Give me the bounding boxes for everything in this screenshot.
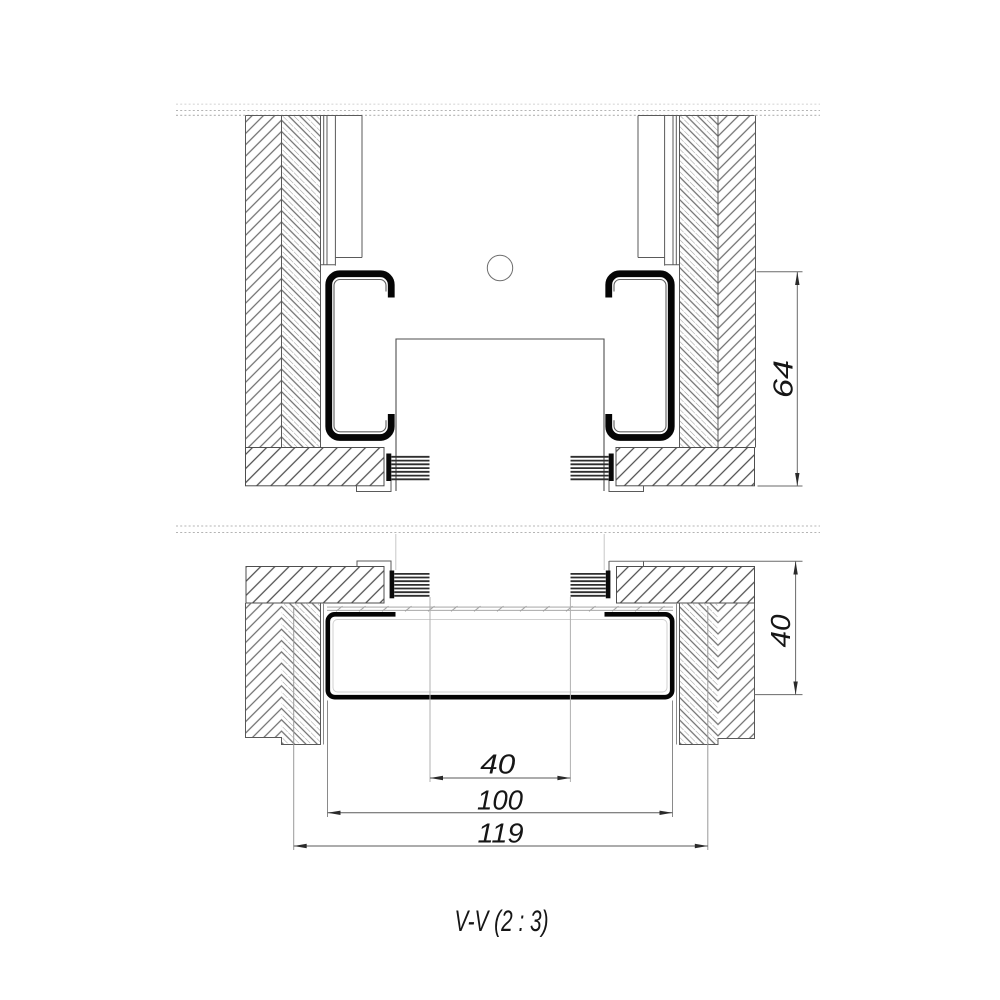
svg-text:64: 64 <box>767 360 798 398</box>
svg-text:100: 100 <box>477 785 523 816</box>
svg-text:119: 119 <box>478 818 524 849</box>
svg-text:V-V (2 : 3): V-V (2 : 3) <box>455 905 549 938</box>
svg-text:40: 40 <box>765 614 796 647</box>
svg-text:40: 40 <box>480 749 515 780</box>
